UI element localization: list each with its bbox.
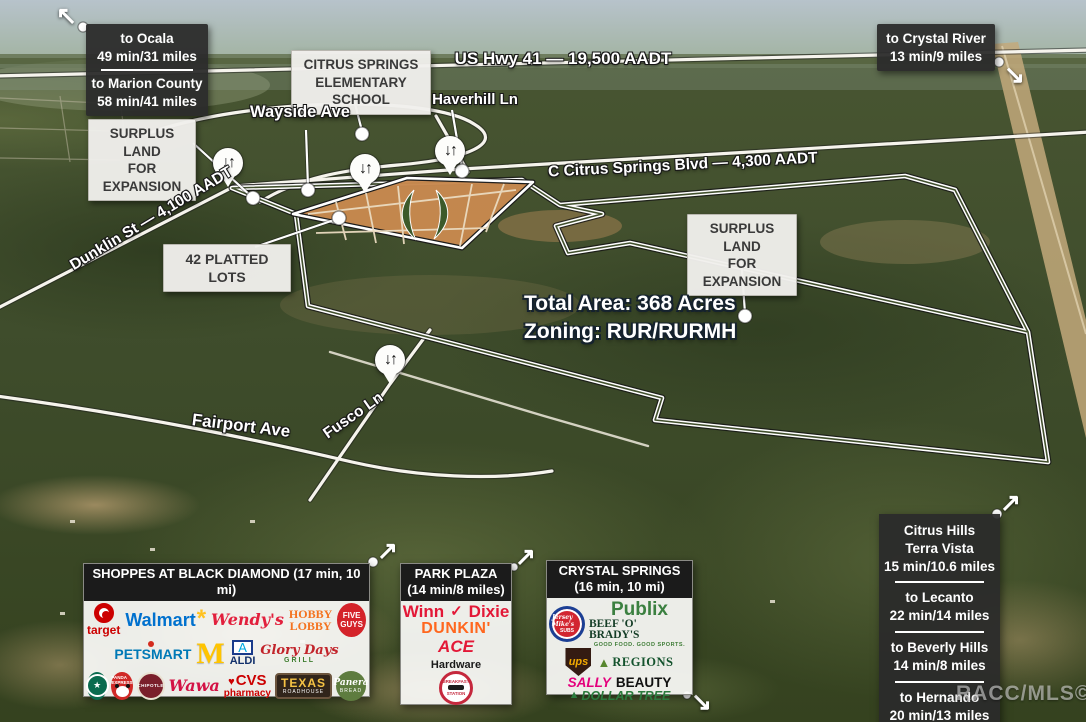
- starbucks-logo: ★: [87, 672, 107, 700]
- divider: [895, 581, 984, 583]
- destination-time: 15 min/10.6 miles: [883, 558, 996, 576]
- regions-triangle-icon: ▲: [597, 656, 610, 669]
- target-wordmark: target: [87, 624, 120, 636]
- arrow-up-right-icon: ↗: [515, 545, 536, 570]
- glory-days-wordmark: Glory Days: [260, 644, 338, 657]
- road-label-haverhill: Haverhill Ln: [420, 91, 530, 108]
- destination-name: Terra Vista: [883, 540, 996, 558]
- logo-row: PETSMART M A ALDI Glory Days GRILL: [87, 637, 366, 671]
- callout-line: 58 min/41 miles: [91, 93, 203, 111]
- logo-grid: Jersey Mike's SUBS Publix BEEF 'O' BRADY…: [547, 598, 692, 705]
- destination-entry: to Beverly Hills 14 min/8 miles: [883, 639, 996, 675]
- winn-dixie-logo: Winn ✓ Dixie: [404, 603, 508, 620]
- hobby-line: HOBBY: [289, 608, 332, 620]
- five-guys-line: GUYS: [340, 620, 363, 629]
- beef-obradys-logo: BEEF 'O' BRADY'S GOOD FOOD. GOOD SPORTS.: [589, 619, 690, 649]
- winn-dixie-check-icon: ✓: [450, 604, 463, 619]
- cvs-wordmark: CVS: [236, 672, 267, 689]
- callout-line: CITRUS SPRINGS: [296, 56, 426, 74]
- aldi-logo: A ALDI: [230, 640, 256, 668]
- callout-line: SURPLUS LAND: [93, 125, 191, 160]
- callout-line: 49 min/31 miles: [91, 48, 203, 66]
- wawa-logo: Wawa: [169, 676, 220, 695]
- ups-logo: ups: [565, 648, 591, 676]
- destination-name: to Beverly Hills: [883, 639, 996, 657]
- callout-line: to Marion County: [91, 75, 203, 93]
- destination-entry: Citrus Hills Terra Vista 15 min/10.6 mil…: [883, 522, 996, 575]
- zoning-text: Zoning: RUR/RURMH: [524, 318, 736, 346]
- access-pin: ↓↑: [350, 154, 380, 184]
- station-wordmark: STATION: [447, 691, 466, 696]
- beef-wordmark: BEEF 'O' BRADY'S: [589, 619, 690, 642]
- dollar-tree-wordmark: DOLLAR TREE: [582, 690, 671, 703]
- divider: [895, 631, 984, 633]
- callout-line: FOR EXPANSION: [93, 160, 191, 195]
- train-icon: [448, 685, 464, 690]
- destination-entry: to Lecanto 22 min/14 miles: [883, 589, 996, 625]
- cvs-pharmacy: pharmacy: [224, 689, 271, 699]
- hobby-lobby-logo: HOBBY LOBBY: [289, 608, 332, 632]
- panel-title: CRYSTAL SPRINGS (16 min, 10 mi): [547, 561, 692, 598]
- destination-name: to Lecanto: [883, 589, 996, 607]
- sally-wordmark: SALLY: [568, 676, 611, 690]
- hardware-wordmark: Hardware: [431, 660, 481, 671]
- panera-logo: Panera BREAD: [336, 671, 366, 701]
- two-way-arrows-icon: ↓↑: [359, 160, 371, 178]
- callout-line: 13 min/9 miles: [882, 48, 990, 66]
- logo-grid: target Walmart * Wendy's HOBBY LOBBY FIV…: [84, 601, 369, 703]
- five-guys-line: FIVE: [343, 611, 361, 620]
- callout-line: to Crystal River: [882, 30, 990, 48]
- callout-line: SURPLUS LAND: [692, 220, 792, 255]
- target-logo: target: [87, 603, 120, 636]
- target-bullseye-icon: [94, 603, 114, 623]
- park-plaza-panel: PARK PLAZA (14 min/8 miles) Winn ✓ Dixie…: [400, 563, 512, 705]
- beauty-wordmark: BEAUTY: [616, 676, 672, 690]
- arrow-up-right-icon: ↗: [1000, 491, 1021, 516]
- starbucks-siren-icon: ★: [93, 680, 101, 691]
- jersey-mikes-wordmark: Jersey Mike's: [552, 614, 582, 628]
- cvs-logo: ♥CVS pharmacy: [224, 673, 271, 699]
- dixie-wordmark: Dixie: [469, 603, 510, 620]
- glory-days-grill: GRILL: [284, 657, 315, 664]
- subs-wordmark: SUBS: [560, 628, 574, 634]
- access-pin: ↓↑: [435, 136, 465, 166]
- panel-title: SHOPPES AT BLACK DIAMOND (17 min, 10 mi): [84, 564, 369, 601]
- walmart-logo: Walmart *: [125, 611, 206, 629]
- ocala-distance-box: to Ocala 49 min/31 miles to Marion Count…: [86, 24, 208, 116]
- wendys-logo: Wendy's: [211, 610, 284, 629]
- dunkin-logo: DUNKIN': [421, 620, 491, 638]
- five-guys-logo: FIVE GUYS: [337, 603, 366, 637]
- ace-hardware-logo: ACE Hardware: [404, 638, 508, 671]
- black-diamond-panel: SHOPPES AT BLACK DIAMOND (17 min, 10 mi)…: [83, 563, 370, 697]
- total-area-text: Total Area: 368 Acres: [524, 290, 736, 318]
- callout-line: 42 PLATTED LOTS: [168, 250, 286, 286]
- mls-watermark: RACC/MLS©: [956, 682, 1086, 706]
- platted-lots-box: 42 PLATTED LOTS: [163, 244, 291, 292]
- regions-wordmark: REGIONS: [612, 656, 673, 669]
- panda-express-logo: PANDA EXPRESS: [111, 672, 132, 700]
- panda-wordmark: PANDA EXPRESS: [111, 675, 132, 685]
- breakfast-wordmark: BREAKFAST: [443, 679, 470, 684]
- aerial-listing-map: ↖ ↘ ↗ ↗ ↘ ↗ ↓↑ ↓↑ ↓↑ ↓↑ to Ocala 49 min/…: [0, 0, 1086, 722]
- two-way-arrows-icon: ↓↑: [444, 142, 456, 160]
- site-summary: Total Area: 368 Acres Zoning: RUR/RURMH: [524, 290, 736, 347]
- aldi-emblem-icon: A: [232, 640, 253, 656]
- ups-wordmark: ups: [569, 656, 589, 668]
- glory-days-logo: Glory Days GRILL: [260, 644, 338, 664]
- hobby-line: LOBBY: [290, 620, 332, 632]
- panel-subtitle: (14 min/8 miles): [403, 582, 509, 598]
- panel-title-line: CRYSTAL SPRINGS: [549, 563, 690, 579]
- panera-bread: BREAD: [340, 688, 362, 694]
- destination-time: 14 min/8 miles: [883, 657, 996, 675]
- arrow-down-right-icon: ↘: [1004, 63, 1025, 88]
- road-label-wayside: Wayside Ave: [240, 103, 360, 122]
- panel-subtitle: (16 min, 10 mi): [549, 579, 690, 595]
- panda-face-icon: [116, 686, 129, 697]
- chipotle-logo: CHIPOTLE: [137, 672, 165, 700]
- road-label-us41: US Hwy 41 — 19,500 AADT: [413, 49, 713, 69]
- callout-line: FOR EXPANSION: [692, 255, 792, 290]
- mcdonalds-logo: M: [196, 637, 224, 671]
- surplus-land-box-east: SURPLUS LAND FOR EXPANSION: [687, 214, 797, 296]
- panel-title: PARK PLAZA (14 min/8 miles): [401, 564, 511, 601]
- cvs-heart-icon: ♥: [228, 676, 235, 688]
- walmart-spark-icon: *: [197, 612, 206, 626]
- logo-grid: Winn ✓ Dixie DUNKIN' ACE Hardware BREAKF…: [401, 601, 511, 707]
- crystal-springs-panel: CRYSTAL SPRINGS (16 min, 10 mi) Jersey M…: [546, 560, 693, 695]
- jersey-mikes-logo: Jersey Mike's SUBS: [549, 606, 585, 642]
- arrow-up-left-icon: ↖: [56, 4, 77, 29]
- dollar-tree-icon: ▲: [569, 690, 580, 701]
- texas-wordmark: TEXAS: [281, 677, 326, 689]
- destination-time: 20 min/13 miles: [883, 707, 996, 722]
- callout-line: to Ocala: [91, 30, 203, 48]
- publix-logo: Publix: [611, 600, 668, 619]
- surplus-land-box-west: SURPLUS LAND FOR EXPANSION: [88, 119, 196, 201]
- sally-beauty-logo: SALLY BEAUTY: [549, 676, 690, 690]
- dollar-tree-logo: ▲ DOLLAR TREE: [549, 690, 690, 703]
- aldi-wordmark: ALDI: [230, 656, 256, 667]
- access-pin: ↓↑: [375, 345, 405, 375]
- petsmart-logo: PETSMART: [114, 646, 191, 662]
- panera-wordmark: Panera: [333, 678, 368, 688]
- ace-wordmark: ACE: [438, 638, 474, 655]
- crystal-river-distance-box: to Crystal River 13 min/9 miles: [877, 24, 995, 71]
- two-way-arrows-icon: ↓↑: [384, 351, 396, 369]
- regions-logo: ▲ REGIONS: [597, 656, 673, 669]
- winn-wordmark: Winn: [403, 603, 444, 620]
- panel-title-line: PARK PLAZA: [403, 566, 509, 582]
- walmart-wordmark: Walmart: [125, 611, 195, 629]
- destination-time: 22 min/14 miles: [883, 607, 996, 625]
- roadhouse-wordmark: ROADHOUSE: [283, 690, 324, 695]
- divider: [101, 69, 193, 71]
- logo-row: ★ PANDA EXPRESS CHIPOTLE Wawa ♥CVS pharm…: [87, 671, 366, 701]
- destination-name: Citrus Hills: [883, 522, 996, 540]
- arrow-up-right-icon: ↗: [377, 539, 398, 564]
- chipotle-wordmark: CHIPOTLE: [137, 683, 163, 688]
- arrow-down-right-icon: ↘: [691, 690, 712, 715]
- logo-row: target Walmart * Wendy's HOBBY LOBBY FIV…: [87, 603, 366, 637]
- breakfast-station-logo: BREAKFAST STATION: [439, 671, 473, 705]
- texas-roadhouse-logo: TEXAS ROADHOUSE: [275, 673, 332, 699]
